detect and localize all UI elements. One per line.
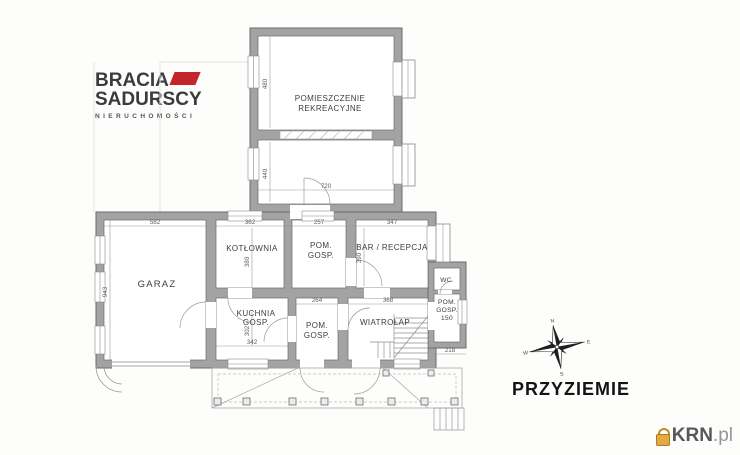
label-pom-gosp-entry-1: POM. — [438, 299, 456, 306]
floor-title: PRZYZIEMIE — [512, 379, 630, 400]
room-kotlownia — [216, 220, 284, 288]
krn-watermark: KRN .pl — [656, 425, 733, 447]
dim-kuchnia-w: 342 — [247, 339, 258, 346]
compass-rose-icon: N E S W — [518, 312, 596, 383]
scan-frame-lines — [94, 62, 250, 212]
padlock-body — [656, 434, 670, 446]
label-wiatrolap: WIATROŁAP — [360, 318, 410, 327]
label-pom-gosp-entry-3: 150 — [441, 315, 453, 322]
dim-bar-w: 347 — [387, 219, 398, 226]
room-wiatrolap — [348, 298, 428, 360]
dim-entry-depth: 218 — [445, 347, 456, 354]
label-kotlownia: KOTŁOWNIA — [226, 244, 278, 253]
label-kuchnia-1: KUCHNIA — [237, 309, 276, 318]
label-wc: WC — [440, 277, 452, 284]
dim-wiatrolap-w: 368 — [383, 297, 394, 304]
dim-rek-upper-h: 480 — [262, 78, 269, 89]
dim-garaz-h: 943 — [102, 286, 109, 297]
terrace-posts — [214, 370, 458, 405]
room-garaz — [104, 220, 206, 360]
watermark-suffix: .pl — [713, 425, 733, 447]
compass-n: N — [550, 318, 555, 325]
curved-step — [96, 366, 122, 392]
room-rekreacyjne-upper — [258, 36, 394, 130]
compass-s: S — [560, 371, 565, 378]
dim-kotlownia-h: 380 — [244, 256, 251, 267]
label-pom-gosp-entry-2: GOSP. — [436, 307, 458, 314]
dim-rek-lower-h: 440 — [262, 168, 269, 179]
dim-kotlownia-w: 362 — [245, 219, 256, 226]
label-rekreacyjne-2: REKREACYJNE — [298, 104, 362, 113]
lower-building-walls — [96, 212, 466, 368]
beam-opening — [280, 131, 372, 139]
watermark-brand: KRN — [672, 425, 713, 447]
dim-pom-gosp-upper-w: 257 — [314, 219, 325, 226]
compass-e: E — [587, 339, 592, 346]
room-rekreacyjne-lower — [258, 140, 394, 204]
padlock-icon — [656, 428, 670, 444]
label-kuchnia-2: GOSP. — [243, 318, 269, 327]
floor-plan-page: BRACIA SADURSCY NIERUCHOMOŚCI — [0, 0, 740, 455]
dim-garaz-w: 582 — [150, 219, 161, 226]
exterior-steps — [434, 408, 464, 430]
upper-building-walls — [250, 28, 402, 220]
dim-pom-gosp-lower-w: 264 — [312, 297, 323, 304]
label-rekreacyjne-1: POMIESZCZENIE — [295, 94, 366, 103]
label-garaz: GARAZ — [138, 279, 177, 290]
label-pom-gosp-upper-2: GOSP. — [308, 251, 334, 260]
dim-rek-w: 720 — [321, 183, 332, 190]
label-pom-gosp-upper-1: POM. — [310, 241, 332, 250]
label-pom-gosp-lower-2: GOSP. — [304, 331, 330, 340]
compass-w: W — [523, 350, 529, 357]
dim-bar-h: 390 — [356, 252, 363, 263]
label-bar-recepcja: BAR / RECEPCJA — [356, 243, 428, 252]
label-pom-gosp-lower-1: POM. — [306, 321, 328, 330]
room-bar-recepcja — [356, 220, 428, 288]
